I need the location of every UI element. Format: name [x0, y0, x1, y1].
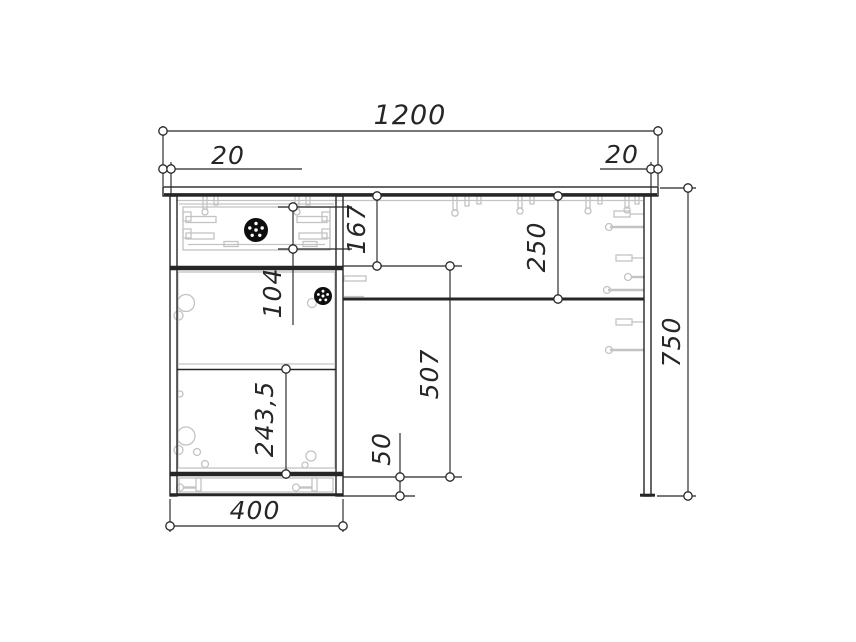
technical-drawing-page: 1200 20 20 167 250 104 243,5 507 50 750 …: [0, 0, 856, 642]
desktop: [163, 187, 658, 196]
dim-pedestal-width: 400: [212, 496, 298, 524]
dim-overall-height: 750: [657, 302, 685, 382]
dim-drawer-section-height: 167: [342, 189, 370, 269]
dim-door-shelf-spacing: 243,5: [250, 364, 278, 474]
dim-drawer-front-height: 104: [258, 253, 286, 333]
drawing-linework: [0, 0, 856, 642]
leg-panel: [640, 196, 655, 496]
hardware-layer: [174, 196, 645, 491]
drawer-knob-icon: [244, 218, 268, 242]
dim-overall-width: 1200: [360, 100, 460, 130]
dim-top-to-shelf: 250: [522, 207, 550, 287]
plinth-feet: [177, 478, 318, 491]
leg-hardware: [604, 211, 646, 354]
door-knob-icon: [314, 287, 332, 305]
dim-overhang-right: 20: [596, 140, 648, 168]
dim-overhang-left: 20: [202, 141, 254, 169]
dim-plinth-height: 50: [367, 409, 395, 489]
dim-door-section-height: 507: [415, 334, 443, 414]
